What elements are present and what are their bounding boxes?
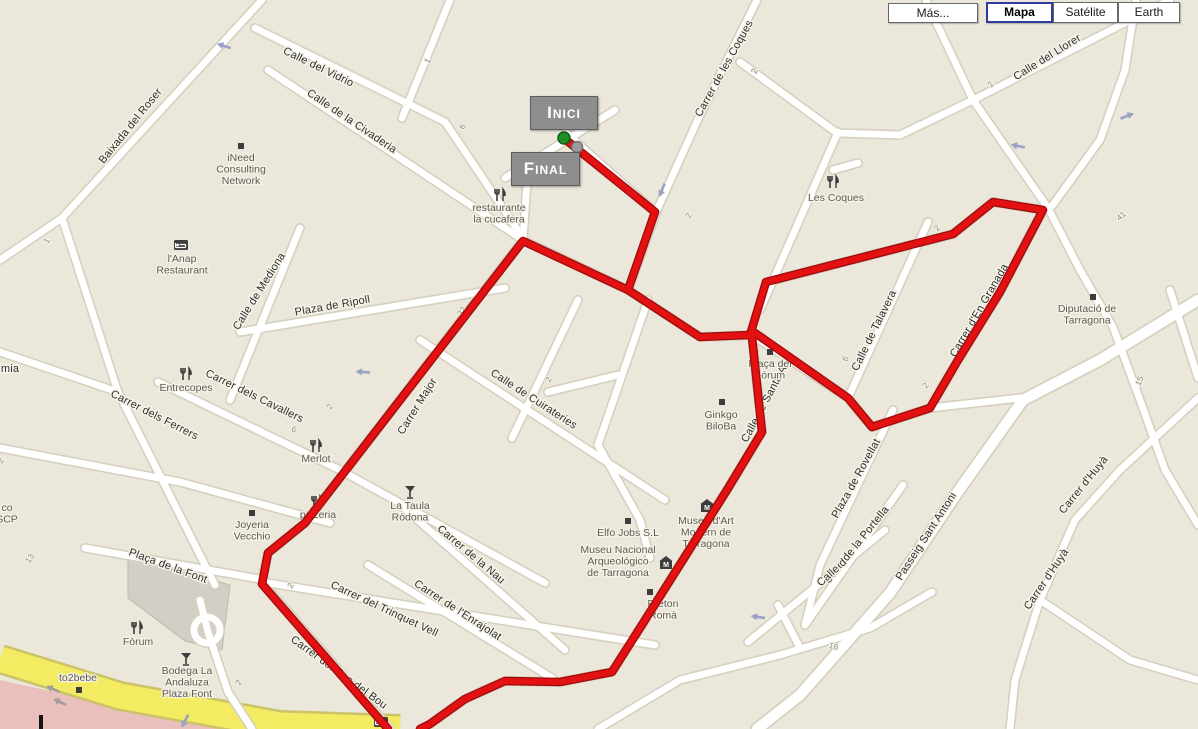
poi-label: Elfo Jobs S.L: [597, 527, 659, 539]
poi-label: Andaluza: [165, 677, 209, 689]
poi-label: co: [1, 502, 12, 514]
square-icon: [238, 143, 244, 149]
poi-label: Arqueológico: [587, 556, 648, 568]
black-bar: [39, 715, 43, 729]
street: [837, 133, 900, 135]
poi-label: Vecchio: [234, 531, 271, 543]
map-canvas[interactable]: 1162224122153226262216132Baixada del Ros…: [0, 0, 1198, 729]
street-label: mia: [1, 363, 20, 375]
poi-label: Bodega La: [162, 665, 213, 677]
square-icon: [249, 510, 255, 516]
poi-label: Ginkgo: [704, 409, 737, 421]
poi-label: restaurante: [472, 202, 525, 214]
poi-label: SCP: [0, 514, 18, 526]
poi-label: de Tarragona: [587, 567, 649, 579]
poi-label: Entrecopes: [159, 382, 212, 394]
poi-label: to2bebe: [59, 672, 97, 684]
end-marker-label: Final: [511, 152, 580, 186]
poi-label: Plaza Font: [162, 688, 212, 700]
poi-label: Joyeria: [235, 519, 269, 531]
square-icon: [1090, 294, 1096, 300]
map-type-button-map[interactable]: Mapa: [986, 2, 1053, 23]
poi-label: Ròdona: [392, 512, 429, 524]
square-icon: [625, 518, 631, 524]
poi-label: La Taula: [390, 500, 430, 512]
poi-label: Network: [222, 175, 261, 187]
start-dot: [558, 132, 570, 144]
square-icon: [76, 687, 82, 693]
poi-label: iNeed: [227, 152, 255, 164]
poi-label: Tarragona: [1063, 315, 1110, 327]
poi-label: Restaurant: [156, 265, 207, 277]
poi-label: Fòrum: [123, 636, 154, 648]
map-type-button-earth[interactable]: Earth: [1118, 2, 1180, 23]
svg-text:M: M: [663, 562, 669, 569]
poi-label: Merlot: [301, 453, 330, 465]
poi-label: la cucafera: [473, 214, 525, 226]
more-button[interactable]: Más...: [888, 3, 978, 23]
square-icon: [647, 589, 653, 595]
start-marker-label: Inici: [530, 96, 598, 130]
poi-label: l'Anap: [168, 253, 197, 265]
poi-label: Diputació de: [1058, 303, 1117, 315]
lodging-icon: [174, 240, 188, 250]
map-type-button-satellite[interactable]: Satélite: [1053, 2, 1118, 23]
poi-label: Les Coques: [808, 192, 864, 204]
poi-label: BiloBa: [706, 421, 737, 433]
poi-label: Museu Nacional: [580, 544, 655, 556]
map-app: 1162224122153226262216132Baixada del Ros…: [0, 0, 1198, 729]
square-icon: [719, 399, 725, 405]
end-dot: [572, 142, 583, 153]
poi-label: Consulting: [216, 164, 266, 176]
